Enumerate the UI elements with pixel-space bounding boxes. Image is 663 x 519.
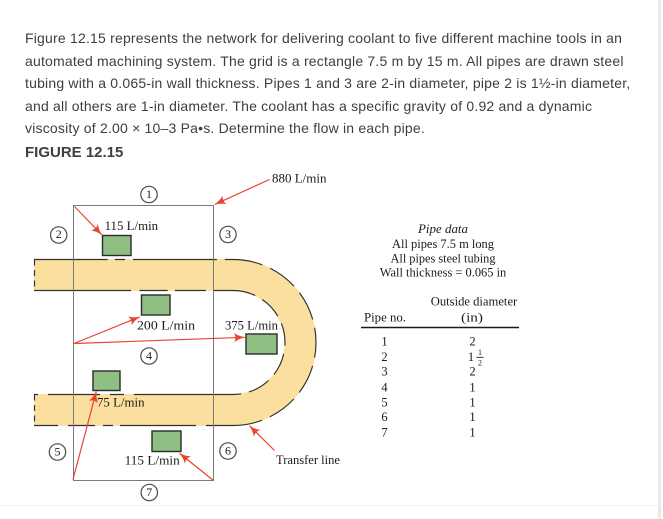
svg-text:1: 1 xyxy=(469,410,475,424)
svg-text:1: 1 xyxy=(146,187,152,201)
svg-text:All pipes steel tubing: All pipes steel tubing xyxy=(391,252,497,266)
svg-text:115 L/min: 115 L/min xyxy=(105,219,159,233)
svg-text:Pipe data: Pipe data xyxy=(417,222,468,236)
svg-text:1: 1 xyxy=(469,396,475,410)
svg-text:375 L/min: 375 L/min xyxy=(225,318,279,332)
svg-text:200 L/min: 200 L/min xyxy=(137,318,196,332)
svg-text:115 L/min: 115 L/min xyxy=(125,454,181,468)
svg-text:6: 6 xyxy=(225,444,231,458)
svg-text:3: 3 xyxy=(225,227,231,241)
svg-text:All pipes 7.5 m long: All pipes 7.5 m long xyxy=(392,237,495,251)
svg-text:1: 1 xyxy=(468,350,474,364)
svg-text:2: 2 xyxy=(469,335,475,349)
svg-text:7: 7 xyxy=(381,426,387,440)
svg-text:2: 2 xyxy=(478,359,482,368)
svg-text:3: 3 xyxy=(381,365,387,379)
svg-text:2: 2 xyxy=(469,365,475,379)
svg-text:1: 1 xyxy=(478,348,482,357)
svg-text:7: 7 xyxy=(146,485,152,499)
svg-text:2: 2 xyxy=(56,227,62,241)
svg-text:2: 2 xyxy=(381,350,387,364)
svg-text:75 L/min: 75 L/min xyxy=(97,396,145,410)
svg-text:Transfer line: Transfer line xyxy=(276,453,340,467)
svg-text:5: 5 xyxy=(55,445,61,459)
svg-text:Pipe no.: Pipe no. xyxy=(364,311,406,325)
svg-text:Wall thickness = 0.065 in: Wall thickness = 0.065 in xyxy=(380,266,507,280)
svg-text:(in): (in) xyxy=(461,311,483,325)
svg-text:6: 6 xyxy=(381,410,387,424)
svg-text:1: 1 xyxy=(469,381,475,395)
svg-text:880 L/min: 880 L/min xyxy=(272,172,327,186)
svg-text:4: 4 xyxy=(381,381,388,395)
svg-text:1: 1 xyxy=(469,426,475,440)
svg-text:4: 4 xyxy=(146,349,152,363)
svg-text:5: 5 xyxy=(381,396,387,410)
svg-text:Outside diameter: Outside diameter xyxy=(431,295,518,309)
svg-text:1: 1 xyxy=(381,335,387,349)
